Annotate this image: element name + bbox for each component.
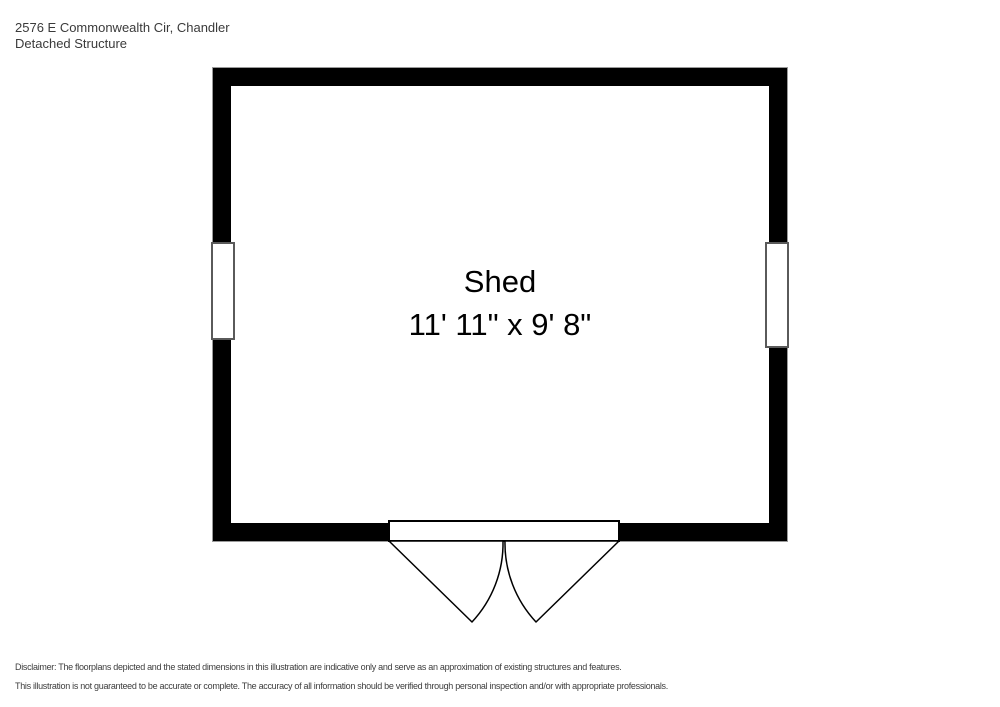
floorplan-page: 2576 E Commonwealth Cir, Chandler Detach… [0,0,1000,707]
door-leaf-left-icon [389,541,503,622]
door-opening-header [389,521,619,541]
room-label-block: Shed 11' 11" x 9' 8" [213,260,787,346]
floorplan-drawing [0,0,1000,707]
room-dimensions-label: 11' 11" x 9' 8" [213,303,787,346]
disclaimer-line-2: This illustration is not guaranteed to b… [15,677,668,696]
disclaimer-block: Disclaimer: The floorplans depicted and … [15,658,668,695]
door-leaf-right-icon [505,541,619,622]
disclaimer-line-1: Disclaimer: The floorplans depicted and … [15,658,668,677]
room-name-label: Shed [213,260,787,303]
